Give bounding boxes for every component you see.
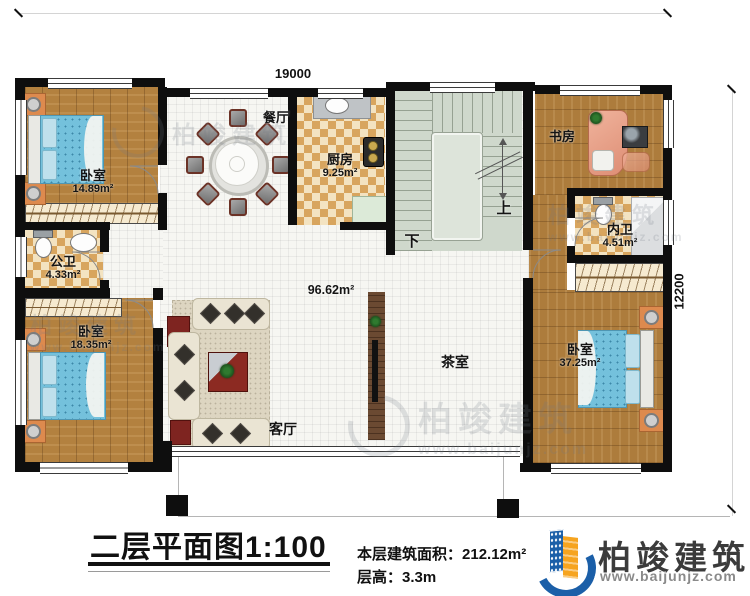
room-label-ensuite-bath: 内卫 4.51m² [590, 222, 650, 250]
hall-area-label: 96.62m² [300, 283, 362, 298]
terrace-column [166, 495, 188, 516]
room-label-bedroom-top-left: 卧室 14.89m² [63, 168, 123, 196]
room-label-bedroom-right: 卧室 37.25m² [550, 342, 610, 370]
room-label-study: 书房 [534, 129, 590, 144]
closet [25, 203, 160, 224]
drawing-title: 二层平面图1:100 [90, 522, 327, 566]
window [15, 340, 27, 425]
floor-plan-canvas: 19000 12200 上 下 [0, 0, 750, 596]
sofa [192, 298, 270, 330]
window [663, 200, 674, 245]
side-table [170, 420, 191, 445]
wall-segment [158, 87, 167, 165]
overall-width-dimension: 19000 [258, 66, 328, 81]
pillow [42, 118, 57, 148]
wall-segment [15, 222, 110, 230]
wardrobe [575, 263, 665, 292]
stair-direction-line [502, 144, 503, 194]
nightstand [639, 409, 664, 432]
arrow-down-icon [499, 193, 507, 200]
window [15, 100, 27, 175]
desk-chair [592, 150, 614, 171]
stairs-down-label: 下 [400, 233, 424, 251]
door-arc [125, 300, 154, 329]
sink [70, 233, 97, 252]
wall-segment [153, 328, 163, 464]
wall-segment [15, 288, 110, 298]
dining-chair [229, 198, 247, 216]
pillow [625, 334, 640, 368]
right-reference-line [732, 90, 733, 516]
window [190, 88, 268, 99]
wall-segment [158, 193, 167, 230]
pillow [42, 387, 57, 417]
wall-segment [100, 222, 109, 252]
wall-segment [567, 188, 575, 218]
window [318, 88, 363, 99]
room-label-public-bath: 公卫 4.33m² [33, 254, 93, 282]
title-underline-thin [88, 571, 330, 572]
dining-chair [229, 109, 247, 127]
room-label-bedroom-bottom-left: 卧室 18.35m² [61, 324, 121, 352]
door-arc [130, 166, 159, 195]
stair-steps-left [395, 91, 432, 251]
logo-building-orange [563, 536, 578, 579]
window [430, 82, 495, 93]
plant [590, 112, 602, 124]
window [560, 85, 640, 96]
plant [220, 364, 234, 378]
terrace-column [497, 499, 519, 518]
overall-depth-dimension: 12200 [672, 261, 687, 323]
dining-table-center [229, 156, 245, 172]
bed-headboard [640, 330, 654, 408]
logo-building-blue [549, 529, 564, 573]
tv [372, 340, 378, 402]
window [551, 463, 641, 474]
wall-segment [523, 82, 533, 250]
corridor-floor [103, 222, 163, 298]
stairs-up-label: 上 [492, 200, 516, 218]
floor-area-info: 本层建筑面积：212.12m² [357, 543, 526, 564]
brand-logo-icon [536, 530, 588, 588]
computer-monitor [622, 126, 648, 148]
wall-segment [567, 188, 663, 196]
wall-segment [288, 88, 297, 225]
plant [370, 316, 381, 327]
arrow-up-icon [499, 138, 507, 145]
floor-height-info: 层高：3.3m [357, 566, 436, 587]
room-label-kitchen: 厨房 9.25m² [305, 152, 375, 180]
terrace-outline [178, 516, 730, 517]
title-underline [88, 562, 330, 566]
room-label-tea-room: 茶室 [427, 354, 483, 371]
sofa [168, 332, 200, 420]
brand-website: www.baijunjz.com [600, 568, 737, 584]
stair-steps-top [432, 91, 522, 133]
kitchen-sink [325, 97, 349, 114]
nightstand [639, 306, 664, 329]
desk-return [622, 152, 650, 172]
wall-segment [386, 82, 395, 255]
window [48, 78, 132, 89]
wall-segment [523, 278, 533, 472]
door-arc [533, 250, 562, 279]
room-label-dining: 餐厅 [248, 110, 304, 125]
window [40, 462, 128, 474]
pillow [42, 355, 57, 385]
balcony-window-band [172, 446, 520, 457]
closet [25, 298, 122, 317]
dining-chair [186, 156, 204, 174]
window [15, 237, 27, 277]
bed-sheet-fold [86, 353, 104, 417]
pillow [625, 370, 640, 404]
pillow [42, 150, 57, 180]
stair-void [432, 133, 482, 240]
window [663, 100, 674, 148]
room-label-living: 客厅 [255, 421, 311, 438]
wall-segment [567, 255, 663, 263]
top-reference-line [18, 13, 668, 14]
wall-segment [153, 288, 163, 300]
